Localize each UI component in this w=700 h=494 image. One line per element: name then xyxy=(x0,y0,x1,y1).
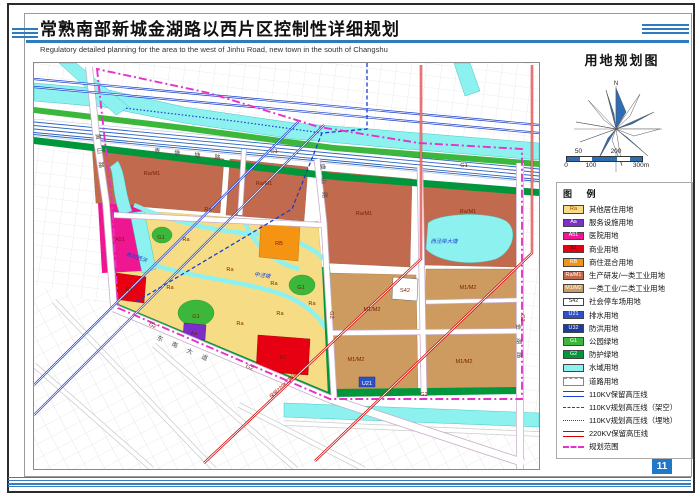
scale-bar: 50200 0100300m xyxy=(566,148,646,174)
svg-text:Ra/M1: Ra/M1 xyxy=(256,181,272,187)
svg-text:A51: A51 xyxy=(115,237,125,243)
svg-text:M1/M2: M1/M2 xyxy=(459,285,476,291)
svg-text:Ra: Ra xyxy=(226,267,234,273)
legend-swatch: U21 xyxy=(563,311,584,320)
footer-line-3 xyxy=(8,483,691,485)
legend-item-label: 服务设施用地 xyxy=(589,217,633,228)
header-left-stripes xyxy=(12,28,38,38)
svg-text:G1: G1 xyxy=(192,314,199,320)
legend-swatch: RB xyxy=(563,258,584,267)
legend-item: U21排水用地 xyxy=(563,309,692,322)
svg-text:G2: G2 xyxy=(420,392,427,398)
legend-swatch: B1 xyxy=(563,245,584,254)
legend-item-label: 110KV规划高压线（埋地） xyxy=(589,415,677,426)
legend-item-label: 道路用地 xyxy=(589,376,619,387)
svg-text:西泾岸大塘: 西泾岸大塘 xyxy=(431,238,460,245)
legend-swatch: M1/M2 xyxy=(563,284,584,293)
legend-item: B1商业用地 xyxy=(563,243,692,256)
legend-item: S42社会停车场用地 xyxy=(563,295,692,308)
page-subtitle: Regulatory detailed planning for the are… xyxy=(40,45,388,54)
scale-bottom-labels: 0100300m xyxy=(566,162,646,170)
legend-item: 220KV保留高压线 xyxy=(563,427,692,440)
legend-swatch: Ra xyxy=(563,205,584,214)
footer-line-2 xyxy=(8,480,691,481)
header-rule xyxy=(26,40,689,43)
compass-north-label: N xyxy=(614,81,618,87)
svg-text:Ra: Ra xyxy=(276,311,284,317)
legend-swatch: Ra/M1 xyxy=(563,271,584,280)
svg-text:Ra: Ra xyxy=(236,321,244,327)
legend: 图 例 Ra其他居住用地Aa服务设施用地A51医院用地B1商业用地RB商住混合用… xyxy=(556,182,693,459)
legend-swatch xyxy=(563,431,584,437)
svg-text:Ra: Ra xyxy=(270,281,278,287)
legend-swatch: G2 xyxy=(563,350,584,359)
svg-text:S42: S42 xyxy=(400,288,410,294)
page-number: 11 xyxy=(652,459,672,474)
legend-swatch: A51 xyxy=(563,232,584,241)
planning-document-page: { "header": { "title": "常熟南部新城金湖路以西片区控制性… xyxy=(0,0,700,494)
legend-item-label: 其他居住用地 xyxy=(589,204,633,215)
scale-top-labels: 50200 xyxy=(566,148,646,156)
panel-title: 用地规划图 xyxy=(552,50,692,69)
legend-item: 水域用地 xyxy=(563,361,692,374)
legend-item-label: 220KV保留高压线 xyxy=(589,428,648,439)
svg-text:G1: G1 xyxy=(460,163,467,169)
legend-list: Ra其他居住用地Aa服务设施用地A51医院用地B1商业用地RB商住混合用地Ra/… xyxy=(563,203,692,454)
svg-text:Ra: Ra xyxy=(166,285,174,291)
footer-line-4 xyxy=(8,486,691,487)
legend-item: 110KV规划高压线（埋地） xyxy=(563,414,692,427)
legend-swatch: G1 xyxy=(563,337,584,346)
legend-item-label: 规划范围 xyxy=(589,441,619,452)
svg-text:M1/M2: M1/M2 xyxy=(347,357,364,363)
svg-text:Ra/M1: Ra/M1 xyxy=(460,209,476,215)
legend-item: G1公园绿地 xyxy=(563,335,692,348)
page-title: 常熟南部新城金湖路以西片区控制性详细规划 xyxy=(40,15,400,40)
legend-item-label: 商住混合用地 xyxy=(589,257,633,268)
header-right-stripes xyxy=(642,24,689,34)
legend-item: RB商住混合用地 xyxy=(563,256,692,269)
svg-text:Ra: Ra xyxy=(204,207,212,213)
legend-item: 道路用地 xyxy=(563,374,692,387)
legend-item-label: 商业用地 xyxy=(589,244,619,255)
svg-text:G1: G1 xyxy=(157,235,164,241)
legend-item-label: 一类工业/二类工业用地 xyxy=(589,283,665,294)
footer-line-1 xyxy=(8,477,691,478)
svg-text:M1/M2: M1/M2 xyxy=(455,359,472,365)
legend-item: 110KV规划高压线（架空） xyxy=(563,401,692,414)
legend-item: 规划范围 xyxy=(563,440,692,453)
svg-text:B1: B1 xyxy=(126,287,133,293)
map-canvas: Ra/M1Ra/M1Ra/M1Ra/M1M1/M2M1/M2M1/M2M1/M2… xyxy=(34,63,539,469)
legend-swatch xyxy=(563,391,584,397)
svg-text:Ra: Ra xyxy=(182,237,190,243)
legend-swatch: S42 xyxy=(563,298,584,307)
svg-text:Ra: Ra xyxy=(308,301,316,307)
legend-swatch xyxy=(563,364,584,373)
svg-text:金湖路: 金湖路 xyxy=(514,324,523,367)
svg-text:G1: G1 xyxy=(297,285,304,291)
legend-item: Ra/M1生产研发/一类工业用地 xyxy=(563,269,692,282)
svg-text:Ra/M1: Ra/M1 xyxy=(356,211,372,217)
legend-item-label: 医院用地 xyxy=(589,230,619,241)
legend-swatch xyxy=(563,407,584,408)
svg-text:G2: G2 xyxy=(328,311,334,319)
legend-item-label: 防洪用地 xyxy=(589,323,619,334)
svg-text:Ra/M1: Ra/M1 xyxy=(144,171,160,177)
legend-item: G2防护绿地 xyxy=(563,348,692,361)
legend-item-label: 公园绿地 xyxy=(589,336,619,347)
legend-item: M1/M2一类工业/二类工业用地 xyxy=(563,282,692,295)
svg-text:M1/M2: M1/M2 xyxy=(363,307,380,313)
svg-text:B1: B1 xyxy=(280,355,287,361)
svg-text:G1: G1 xyxy=(270,149,277,155)
legend-swatch xyxy=(563,377,584,386)
svg-text:Aa: Aa xyxy=(191,331,199,337)
legend-item: A51医院用地 xyxy=(563,229,692,242)
legend-swatch xyxy=(563,420,584,421)
legend-item: U32防洪用地 xyxy=(563,322,692,335)
legend-item: Ra其他居住用地 xyxy=(563,203,692,216)
legend-item-label: 110KV保留高压线 xyxy=(589,389,648,400)
svg-text:U21: U21 xyxy=(362,381,372,387)
legend-swatch: U32 xyxy=(563,324,584,333)
legend-item-label: 水域用地 xyxy=(589,362,619,373)
legend-item-label: 110KV规划高压线（架空） xyxy=(589,402,677,413)
svg-text:RB: RB xyxy=(275,241,283,247)
legend-item-label: 社会停车场用地 xyxy=(589,296,641,307)
legend-item-label: 排水用地 xyxy=(589,310,619,321)
legend-swatch xyxy=(563,446,584,448)
legend-item-label: 生产研发/一类工业用地 xyxy=(589,270,665,281)
legend-title: 图 例 xyxy=(563,187,692,200)
legend-item-label: 防护绿地 xyxy=(589,349,619,360)
legend-item: Aa服务设施用地 xyxy=(563,216,692,229)
legend-item: 110KV保留高压线 xyxy=(563,388,692,401)
land-use-plan-map: Ra/M1Ra/M1Ra/M1Ra/M1M1/M2M1/M2M1/M2M1/M2… xyxy=(33,62,540,470)
legend-swatch: Aa xyxy=(563,219,584,228)
svg-text:G2: G2 xyxy=(519,314,525,322)
